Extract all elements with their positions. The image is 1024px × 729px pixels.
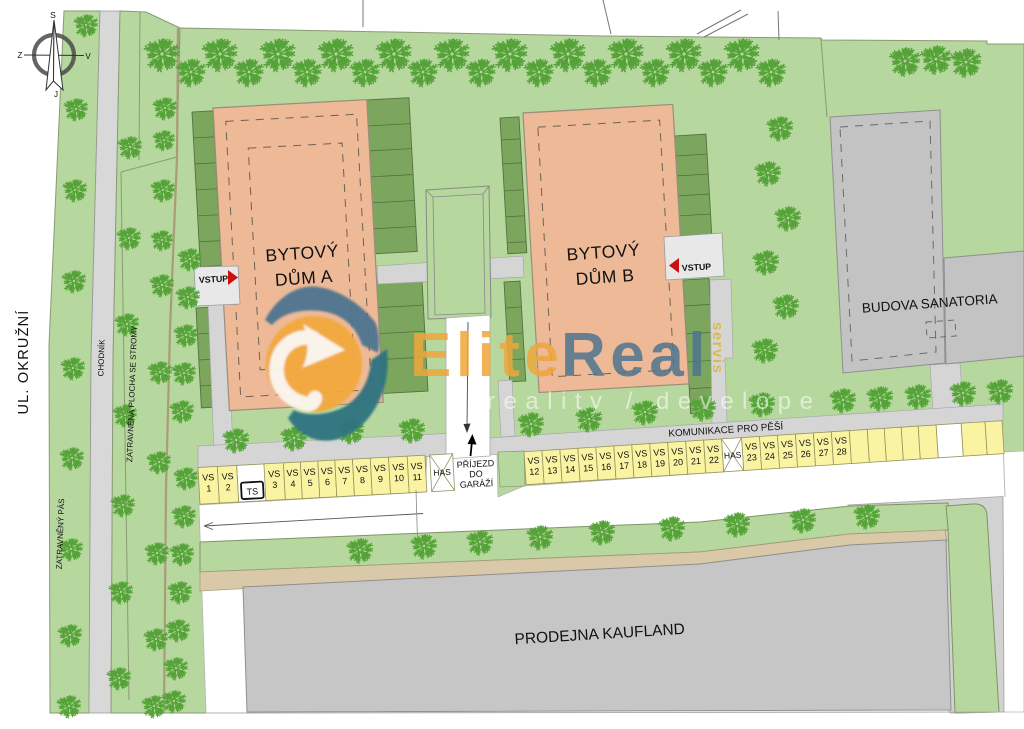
svg-text:DŮM A: DŮM A <box>274 265 333 290</box>
svg-text:VS: VS <box>268 469 281 480</box>
svg-text:26: 26 <box>800 449 811 460</box>
svg-text:VS: VS <box>410 461 423 472</box>
svg-text:HAS: HAS <box>724 450 742 461</box>
svg-text:VS: VS <box>817 436 830 447</box>
svg-text:VS: VS <box>745 441 758 452</box>
svg-text:VS: VS <box>671 446 684 457</box>
svg-text:21: 21 <box>691 456 702 467</box>
svg-text:VS: VS <box>581 452 594 463</box>
svg-text:18: 18 <box>637 459 648 470</box>
svg-text:VS: VS <box>835 435 848 446</box>
svg-text:VS: VS <box>338 465 351 476</box>
svg-text:VS: VS <box>527 455 540 466</box>
svg-text:4: 4 <box>290 479 296 489</box>
svg-text:V: V <box>85 52 91 61</box>
svg-text:17: 17 <box>619 461 630 472</box>
svg-text:3: 3 <box>272 480 278 490</box>
svg-text:14: 14 <box>565 464 576 475</box>
svg-text:10: 10 <box>394 473 405 484</box>
svg-text:VS: VS <box>221 471 234 482</box>
svg-text:7: 7 <box>342 476 348 486</box>
svg-text:28: 28 <box>836 446 847 457</box>
svg-text:VS: VS <box>707 444 720 455</box>
svg-text:VS: VS <box>321 466 334 477</box>
svg-text:VS: VS <box>563 453 576 464</box>
svg-text:11: 11 <box>412 472 422 482</box>
svg-text:J: J <box>54 90 58 99</box>
svg-text:CHODNÍK: CHODNÍK <box>96 339 106 377</box>
svg-text:VS: VS <box>545 454 558 465</box>
svg-text:VS: VS <box>617 449 630 460</box>
svg-text:VS: VS <box>653 447 666 458</box>
svg-text:VS: VS <box>374 463 387 474</box>
svg-text:DŮM B: DŮM B <box>575 264 635 289</box>
svg-text:12: 12 <box>529 466 540 477</box>
svg-text:20: 20 <box>673 457 684 468</box>
svg-text:GARÁŽÍ: GARÁŽÍ <box>460 478 494 490</box>
svg-text:5: 5 <box>307 478 313 488</box>
svg-text:24: 24 <box>764 451 775 462</box>
svg-text:VS: VS <box>202 472 215 483</box>
svg-text:6: 6 <box>325 477 331 487</box>
svg-text:VS: VS <box>635 448 648 459</box>
svg-text:22: 22 <box>709 455 720 466</box>
svg-text:HAS: HAS <box>433 467 451 478</box>
svg-text:VS: VS <box>303 467 316 478</box>
svg-text:15: 15 <box>583 463 594 474</box>
svg-text:23: 23 <box>747 452 758 463</box>
svg-text:VS: VS <box>781 439 794 450</box>
svg-text:S: S <box>50 10 56 20</box>
svg-text:VS: VS <box>799 438 812 449</box>
svg-text:16: 16 <box>601 462 612 473</box>
svg-text:Elite: Elite <box>410 321 563 390</box>
svg-text:25: 25 <box>782 450 793 461</box>
svg-text:13: 13 <box>547 465 558 476</box>
svg-text:TS: TS <box>246 486 258 497</box>
svg-text:2: 2 <box>225 482 231 492</box>
svg-text:VS: VS <box>392 462 405 473</box>
svg-text:Real: Real <box>561 321 710 390</box>
svg-text:9: 9 <box>378 474 384 484</box>
svg-text:DO: DO <box>469 469 483 480</box>
svg-text:VS: VS <box>356 464 369 475</box>
svg-text:servis: servis <box>709 322 726 374</box>
svg-text:Z: Z <box>18 51 23 60</box>
svg-text:VSTUP: VSTUP <box>682 261 712 273</box>
svg-text:1: 1 <box>206 483 212 493</box>
svg-text:19: 19 <box>655 458 666 469</box>
svg-text:reality / develope: reality / develope <box>487 388 821 415</box>
svg-text:27: 27 <box>818 447 829 458</box>
svg-text:VS: VS <box>286 468 299 479</box>
svg-text:VS: VS <box>599 451 612 462</box>
svg-text:VS: VS <box>689 445 702 456</box>
svg-text:8: 8 <box>360 475 366 485</box>
svg-text:VSTUP: VSTUP <box>199 273 229 285</box>
svg-text:UL. OKRUŽNÍ: UL. OKRUŽNÍ <box>15 309 32 414</box>
svg-text:VS: VS <box>763 440 776 451</box>
